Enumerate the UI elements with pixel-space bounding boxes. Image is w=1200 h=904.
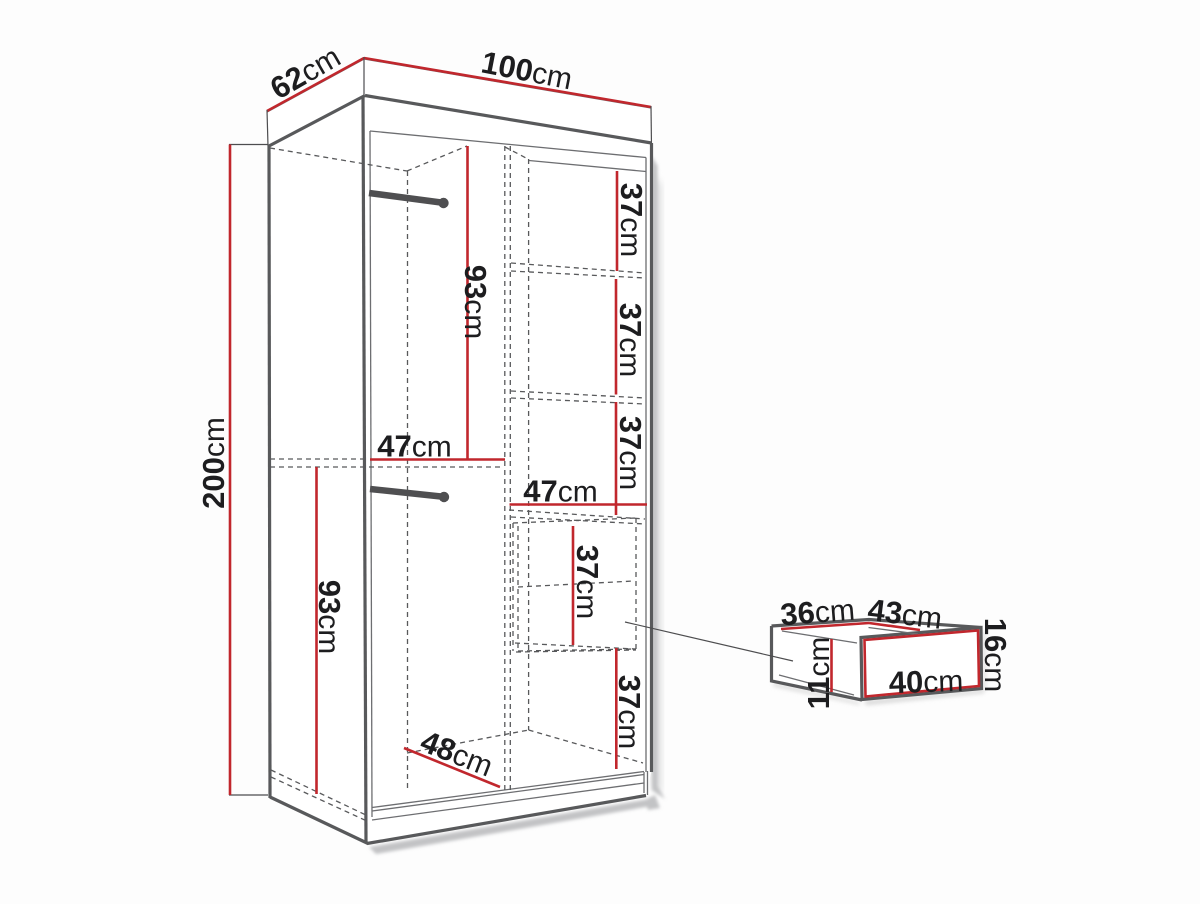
svg-text:37cm: 37cm	[570, 545, 605, 619]
svg-text:37cm: 37cm	[613, 416, 648, 490]
svg-text:37cm: 37cm	[613, 303, 648, 377]
svg-text:40cm: 40cm	[888, 663, 964, 701]
svg-text:93cm: 93cm	[312, 580, 347, 654]
svg-text:16cm: 16cm	[978, 618, 1013, 692]
svg-text:37cm: 37cm	[614, 183, 649, 257]
svg-text:47cm: 47cm	[523, 474, 597, 509]
svg-text:37cm: 37cm	[612, 675, 647, 749]
svg-text:93cm: 93cm	[458, 265, 493, 339]
svg-text:36cm: 36cm	[779, 592, 856, 633]
svg-text:200cm: 200cm	[196, 417, 231, 509]
svg-text:47cm: 47cm	[377, 429, 451, 464]
svg-text:11cm: 11cm	[801, 637, 836, 710]
